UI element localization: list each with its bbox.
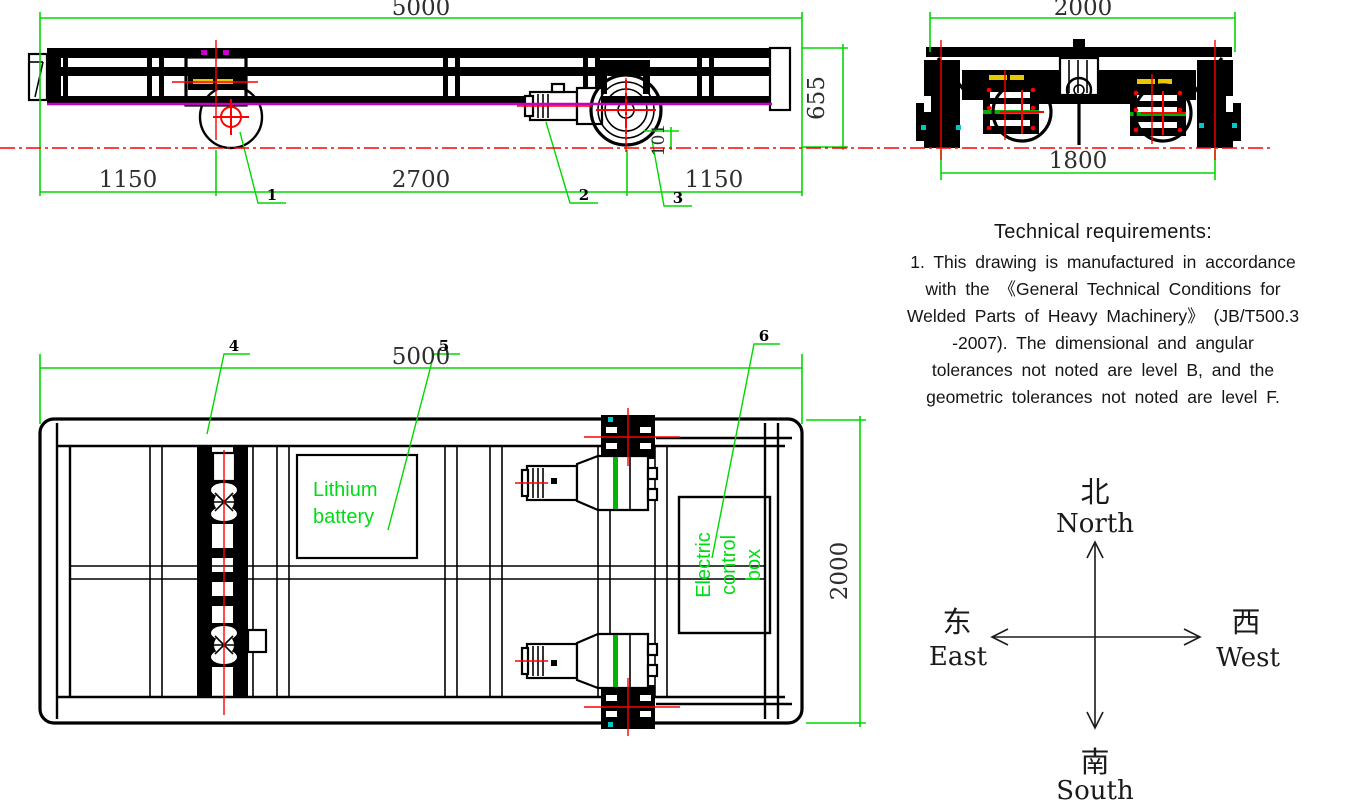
callout-1: 1 bbox=[267, 186, 277, 204]
svg-text:box: box bbox=[743, 549, 765, 581]
dim-side-front: 1150 bbox=[99, 167, 158, 193]
callout-6: 6 bbox=[759, 327, 769, 345]
technical-requirements-line: Welded Parts of Heavy Machinery》 (JB/T50… bbox=[860, 303, 1345, 330]
compass-north-cn: 北 bbox=[1080, 475, 1109, 509]
compass-south-cn: 南 bbox=[1080, 745, 1109, 779]
rail-wheel-left bbox=[916, 60, 960, 148]
technical-requirements-line: with the 《General Technical Conditions f… bbox=[860, 276, 1345, 303]
rail-wheel-right bbox=[1197, 60, 1241, 148]
gear-assembly-right bbox=[1130, 76, 1191, 141]
compass: 北 North 东 East 西 West 南 South bbox=[929, 475, 1281, 801]
callout-2: 2 bbox=[579, 186, 589, 204]
side-view bbox=[29, 48, 790, 148]
end-view bbox=[916, 39, 1241, 148]
compass-west-cn: 西 bbox=[1231, 605, 1260, 639]
technical-requirements: Technical requirements: 1. This drawing … bbox=[860, 221, 1345, 411]
callout-3: 3 bbox=[673, 189, 683, 207]
dim-end-width: 2000 bbox=[1054, 0, 1113, 21]
compass-south-en: South bbox=[1056, 776, 1134, 801]
frame-side bbox=[47, 48, 790, 110]
technical-requirements-line: geometric tolerances not noted are level… bbox=[860, 384, 1345, 411]
technical-requirements-line: tolerances not noted are level B, and th… bbox=[860, 357, 1345, 384]
dim-side-flange: 101 bbox=[649, 124, 669, 156]
top-view bbox=[40, 415, 802, 729]
drive-assembly-plan bbox=[522, 415, 657, 510]
compass-east-cn: 东 bbox=[942, 605, 971, 639]
dim-side-height: 655 bbox=[804, 76, 830, 120]
battery-label-line2: battery bbox=[313, 506, 374, 528]
coupling-hook bbox=[29, 54, 47, 100]
compass-north-en: North bbox=[1056, 509, 1134, 539]
callout-4: 4 bbox=[229, 337, 239, 355]
battery-label-line1: Lithium bbox=[313, 479, 377, 501]
svg-text:control: control bbox=[718, 535, 740, 595]
dim-side-rear: 1150 bbox=[685, 167, 744, 193]
frame-inner-structure bbox=[57, 423, 792, 719]
dim-top-width: 2000 bbox=[827, 542, 853, 601]
callout-5: 5 bbox=[439, 337, 449, 355]
svg-text:Electric: Electric bbox=[693, 532, 715, 598]
compass-east-en: East bbox=[929, 642, 988, 672]
dim-end-gauge: 1800 bbox=[1049, 148, 1108, 174]
control-box-label: Electric control box bbox=[693, 532, 765, 598]
technical-requirements-title: Technical requirements: bbox=[860, 221, 1345, 244]
technical-requirements-line: -2007). The dimensional and angular bbox=[860, 330, 1345, 357]
frame-outline bbox=[40, 419, 802, 723]
compass-west-en: West bbox=[1216, 643, 1280, 673]
dim-side-total: 5000 bbox=[392, 0, 451, 21]
dim-side-wheelbase: 2700 bbox=[392, 167, 451, 193]
idler-wheel-channel bbox=[197, 446, 266, 697]
gearbox-plan bbox=[577, 456, 648, 510]
technical-requirements-line: 1. This drawing is manufactured in accor… bbox=[860, 249, 1345, 276]
